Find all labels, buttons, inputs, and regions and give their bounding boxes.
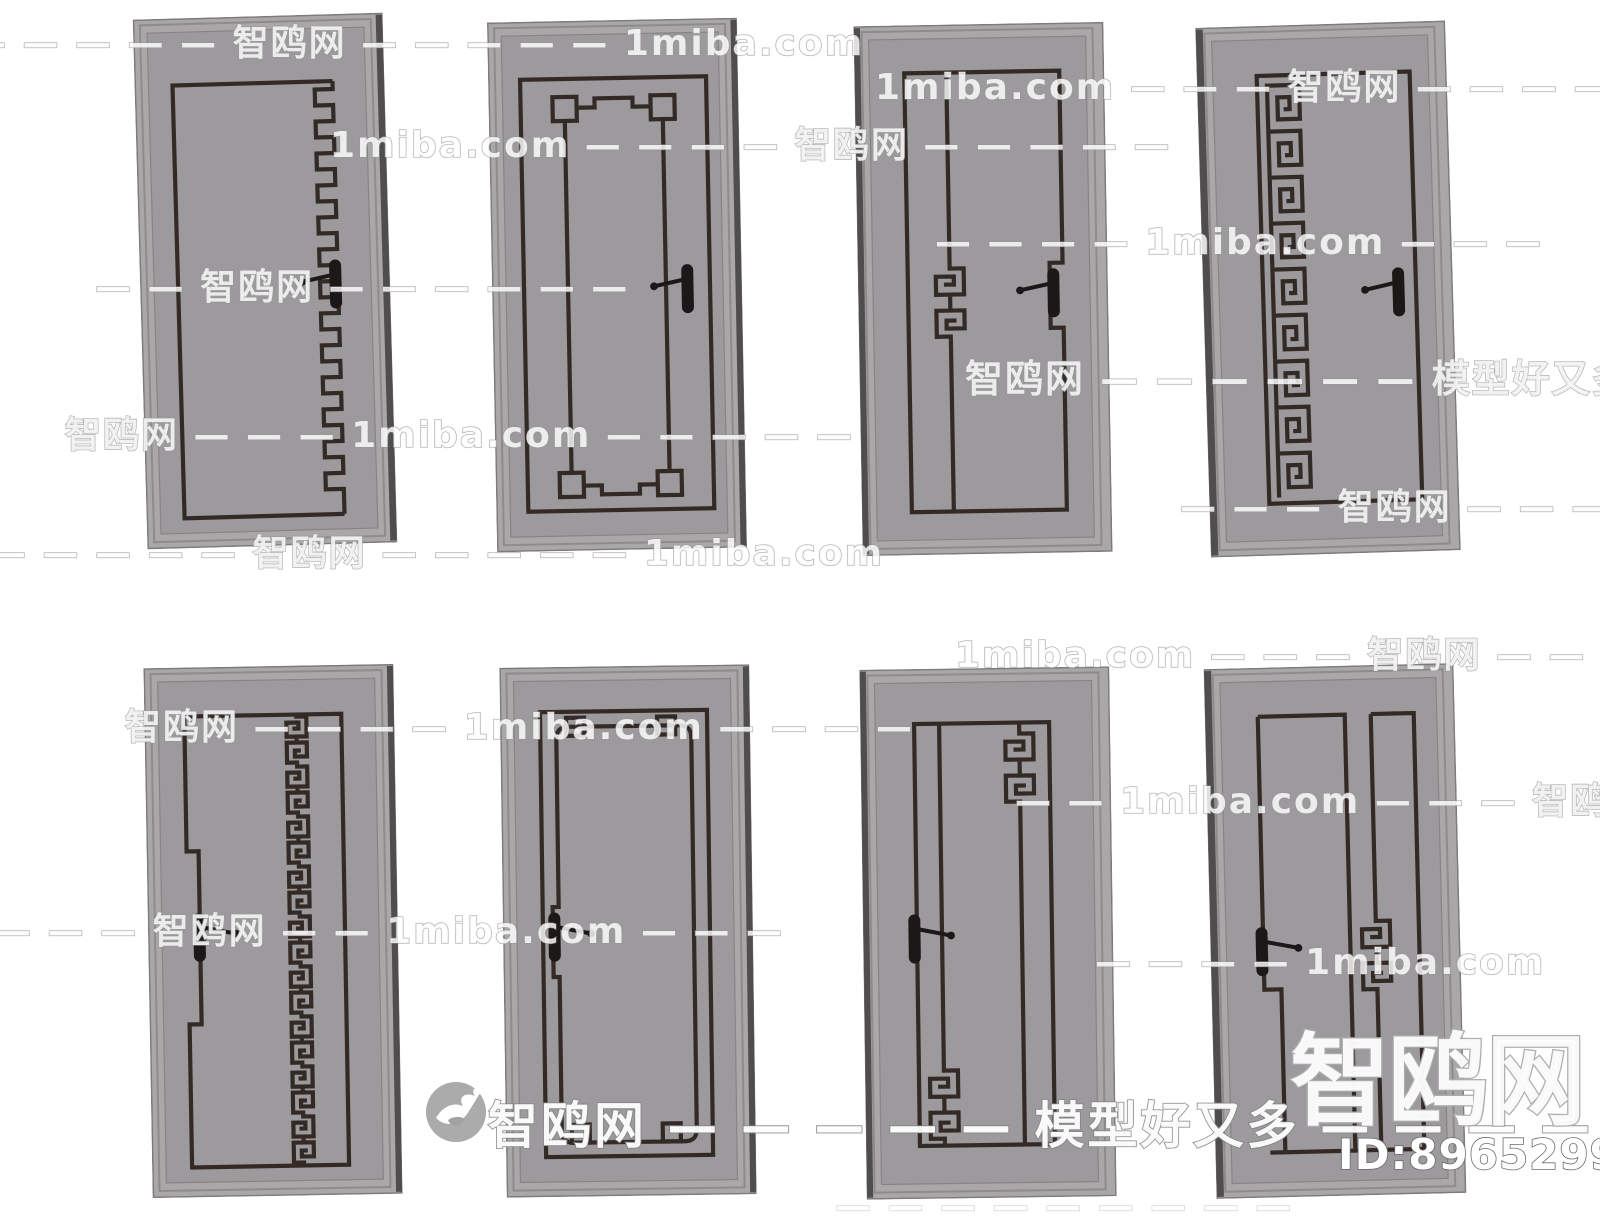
- product-image-canvas: — — — — — 智鸥网 — — — — — 1miba.com1miba.c…: [0, 0, 1600, 1214]
- site-logo-text: 智鸥网: [1290, 1000, 1584, 1145]
- door-3: [853, 22, 1112, 556]
- door-5: [143, 664, 402, 1198]
- door-1: [133, 13, 398, 550]
- door-4: [1195, 20, 1461, 557]
- door-2: [487, 18, 747, 553]
- model-id-label: ID:896529917: [1338, 1130, 1600, 1179]
- watermark-segment: — — — — — 智鸥网 — — — — — 1miba.com: [0, 524, 884, 576]
- bird-logo-icon: [424, 1080, 488, 1144]
